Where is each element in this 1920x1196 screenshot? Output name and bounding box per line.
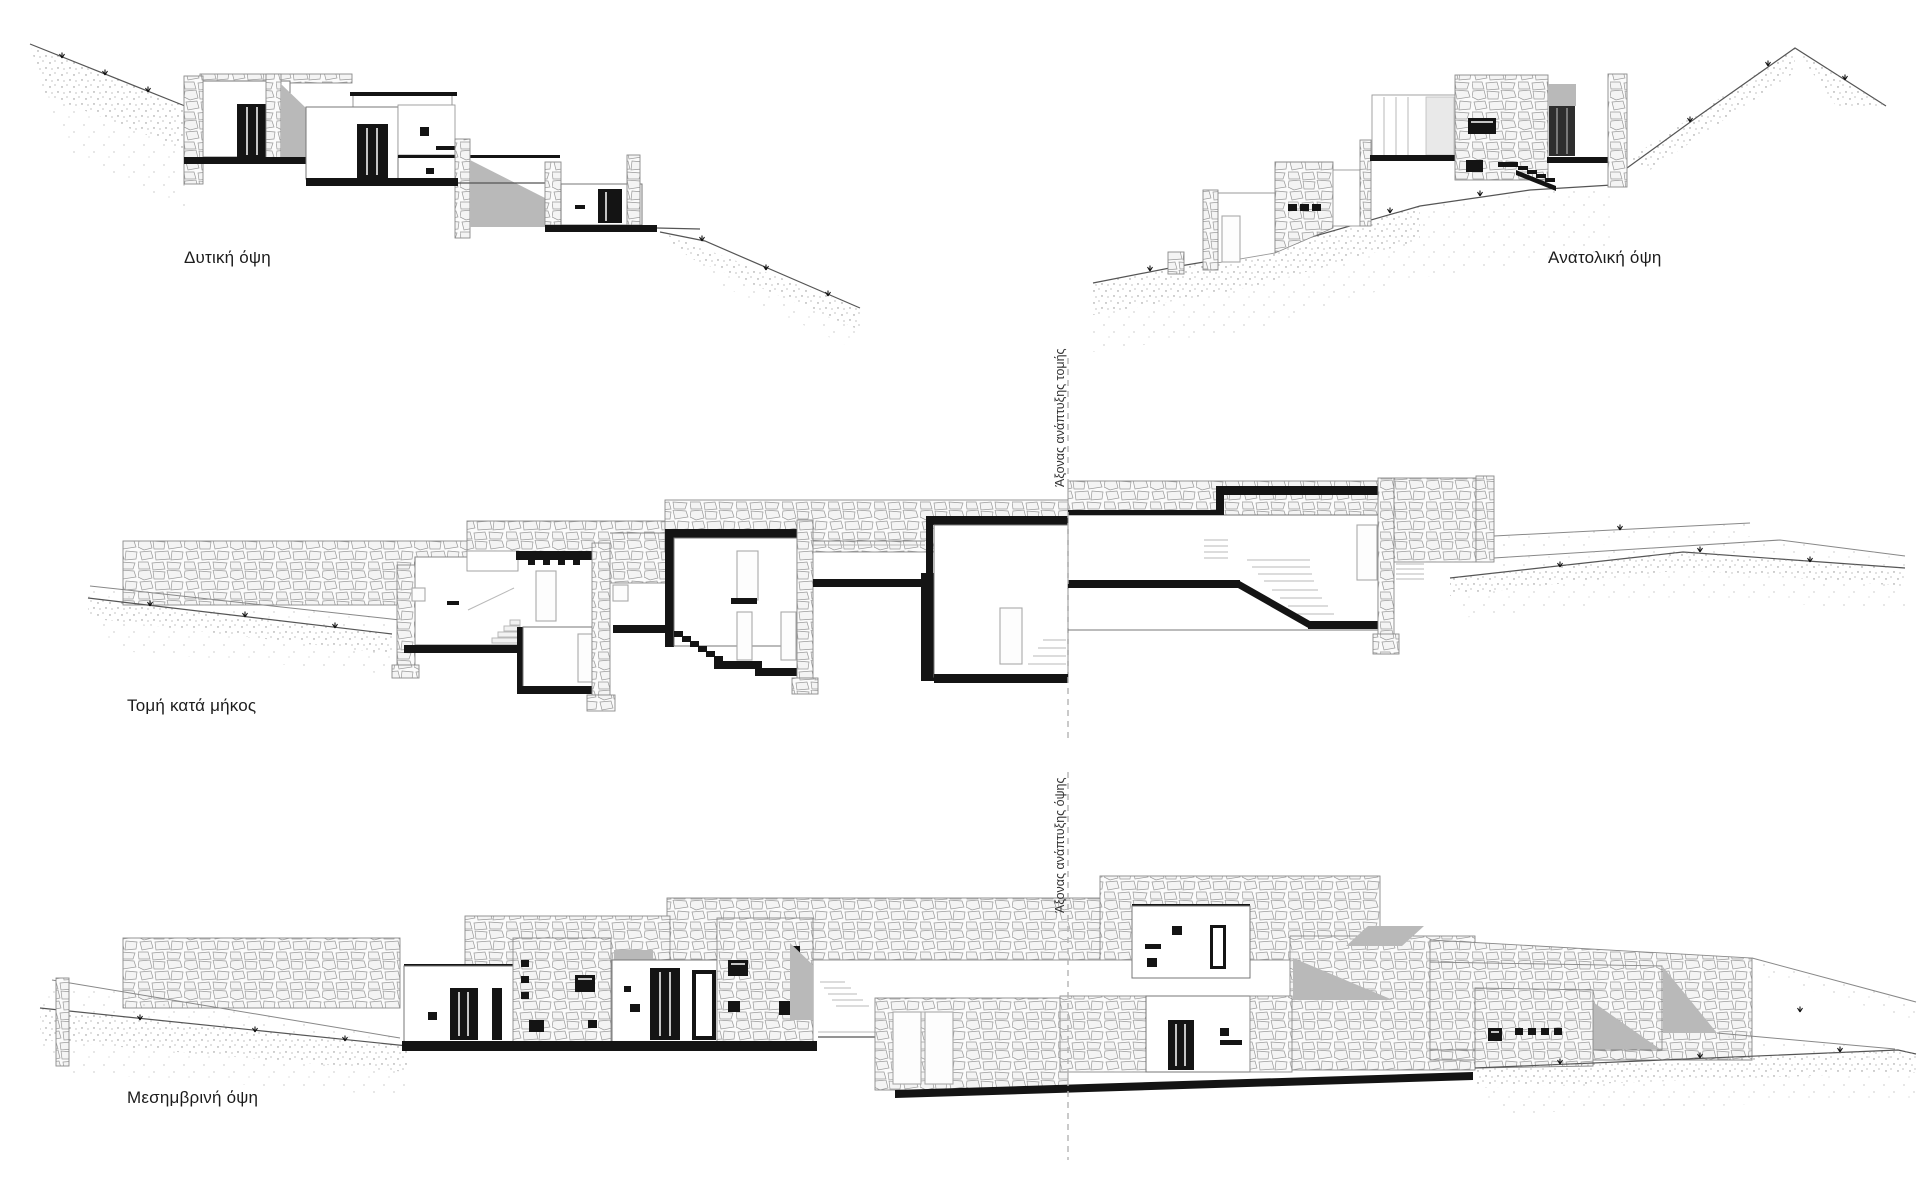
east-elevation-drawing: [1093, 48, 1886, 352]
south-stone-wall-left: [123, 938, 400, 1008]
south-center-terrace: [790, 943, 1068, 1090]
elevation-axis: Άξονας ανάπτυξης όψης: [1053, 772, 1068, 1160]
west-middle-house: [306, 92, 560, 238]
west-elevation-label: Δυτική όψη: [184, 248, 271, 268]
section-ground-right: [1450, 523, 1905, 618]
south-elevation-drawing: [40, 876, 1916, 1114]
east-elevation-label: Ανατολική όψη: [1548, 248, 1662, 268]
long-section-label: Τομή κατά μήκος: [127, 696, 256, 716]
elevation-axis-label: Άξονας ανάπτυξης όψης: [1053, 777, 1067, 913]
west-ground-right: [660, 232, 860, 352]
west-ground-left: [30, 44, 185, 208]
drawing-canvas: Άξονας ανάπτυξης τομής Άξονας ανάπτυξης …: [0, 0, 1920, 1196]
long-section-drawing: [88, 476, 1905, 711]
drawing-sheet: Άξονας ανάπτυξης τομής Άξονας ανάπτυξης …: [0, 0, 1920, 1196]
east-upper-house: [1370, 74, 1627, 191]
west-elevation-drawing: [30, 44, 860, 352]
south-right-walls: [1290, 936, 1752, 1070]
south-elevation-label: Μεσημβρινή όψη: [127, 1088, 258, 1108]
section-left-rooms: [392, 543, 628, 711]
section-axis-label: Άξονας ανάπτυξης τομής: [1053, 348, 1067, 487]
west-lower-house: [545, 155, 700, 232]
